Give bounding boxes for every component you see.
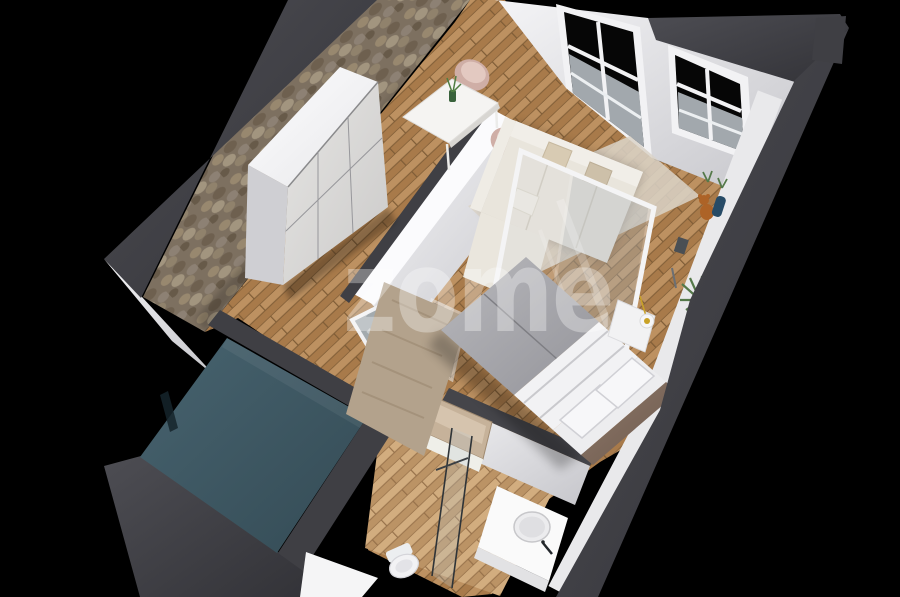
chimney-stub [812,16,846,64]
faucet-base [541,540,545,544]
lamp-bulb [644,318,650,324]
floorplan-viewport: zome [0,0,900,597]
apartment-3d-render: zome [0,0,900,597]
watermark-logo: zome [343,226,613,358]
sink-basin [519,517,545,538]
